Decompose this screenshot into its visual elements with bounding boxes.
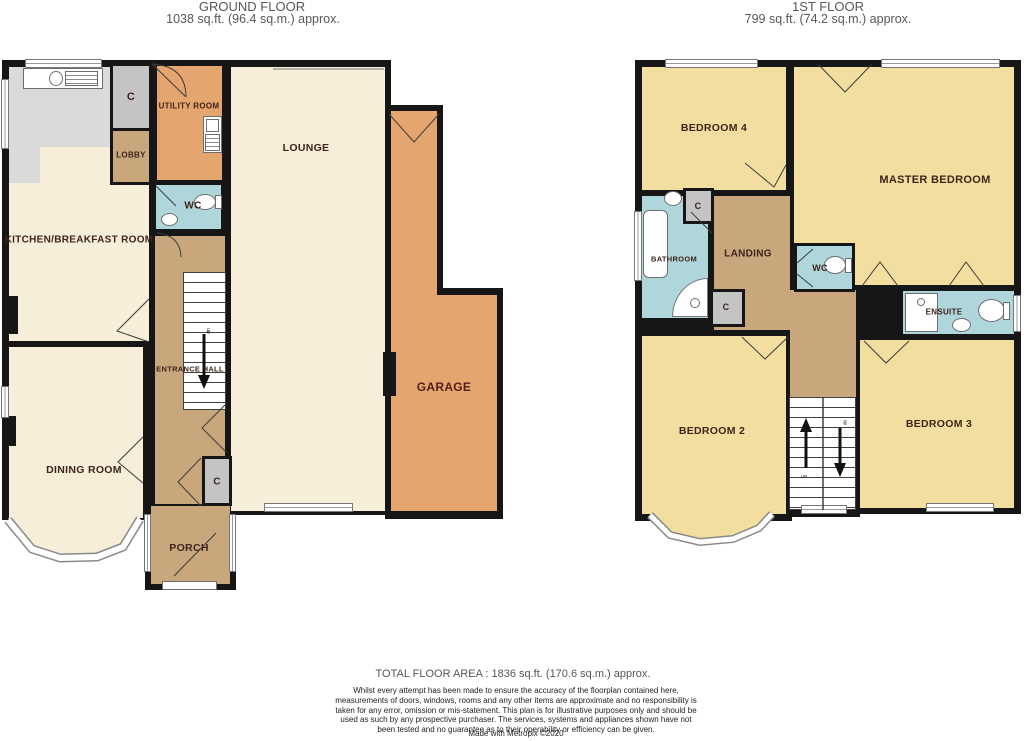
- bathroom-shower-head: [690, 298, 700, 308]
- window-ensuite-right: [1013, 295, 1021, 332]
- wc-ground-cistern: [215, 195, 222, 209]
- label-bathroom: BATHROOM: [651, 255, 697, 264]
- credit-text: Made with Metropix ©2020: [331, 729, 701, 739]
- kitchen-floor-tiles-strip: [9, 147, 40, 183]
- chimney-kitchen: [2, 296, 18, 334]
- ensuite-toilet: [978, 299, 1005, 322]
- window-bedroom4-top: [665, 59, 758, 68]
- ensuite-shower-head: [917, 298, 925, 306]
- label-entrance-hall: ENTRANCE HALL: [156, 365, 224, 374]
- kitchen-drainer: [65, 71, 98, 86]
- stairs-first: [789, 397, 856, 510]
- label-cupboard-hall: C: [213, 477, 221, 488]
- label-dining: DINING ROOM: [46, 464, 122, 476]
- label-ensuite: ENSUITE: [926, 308, 963, 317]
- label-bedroom2: BEDROOM 2: [679, 425, 745, 437]
- label-utility: UTILITY ROOM: [159, 102, 220, 111]
- utility-sink-bowl: [206, 119, 219, 132]
- window-lounge-bottom: [264, 503, 353, 512]
- dining-bay-window: [8, 518, 140, 558]
- window-bedroom3-bottom: [926, 503, 994, 512]
- room-lounge: [231, 67, 385, 511]
- window-kitchen-top: [25, 59, 102, 68]
- room-garage-narrow: [391, 111, 437, 511]
- room-dining: [9, 347, 143, 518]
- label-bedroom3: BEDROOM 3: [906, 418, 972, 430]
- floorplan-canvas: GROUND FLOOR 1038 sq.ft. (96.4 sq.m.) ap…: [0, 0, 1024, 741]
- utility-drainer: [205, 134, 220, 151]
- window-bathroom-left: [634, 211, 642, 281]
- window-porch-left: [144, 514, 151, 572]
- ensuite-cistern: [1003, 302, 1010, 320]
- label-garage: GARAGE: [417, 380, 471, 394]
- window-master-top: [881, 59, 1000, 68]
- label-wc-ground: WC: [184, 201, 201, 212]
- label-cupboard-first-top: C: [695, 201, 702, 211]
- disclaimer-text: Whilst every attempt has been made to en…: [331, 686, 701, 735]
- ensuite-basin: [952, 318, 971, 332]
- window-kitchen-left: [1, 79, 9, 149]
- label-lounge: LOUNGE: [283, 142, 330, 154]
- label-cupboard-ground: C: [127, 91, 135, 103]
- bathroom-basin: [664, 191, 682, 206]
- label-bedroom4: BEDROOM 4: [681, 122, 747, 134]
- chimney-dining: [2, 416, 16, 446]
- window-stairs-bottom: [801, 505, 847, 514]
- window-porch-right: [229, 514, 236, 572]
- kitchen-sink: [49, 71, 63, 86]
- label-lobby: LOBBY: [116, 151, 146, 160]
- first-floor-area: 799 sq.ft. (74.2 sq.m.) approx.: [745, 13, 912, 26]
- label-cupboard-first-mid: C: [723, 302, 730, 312]
- stairs-ground: [183, 272, 226, 410]
- total-floor-area: TOTAL FLOOR AREA : 1836 sq.ft. (170.6 sq…: [376, 668, 651, 680]
- label-wc-first: WC: [812, 263, 828, 273]
- ground-floor-area: 1038 sq.ft. (96.4 sq.m.) approx.: [166, 13, 340, 26]
- window-dining-left: [1, 386, 9, 418]
- label-kitchen: KITCHEN/BREAKFAST ROOM: [5, 235, 154, 246]
- label-master-bedroom: MASTER BEDROOM: [879, 174, 990, 186]
- room-garage-wide: [437, 295, 497, 511]
- wc-first-cistern: [845, 258, 852, 273]
- wc-ground-basin: [161, 213, 178, 226]
- room-landing-column: [790, 290, 856, 397]
- porch-front-door-opening: [162, 581, 217, 590]
- label-landing: LANDING: [724, 249, 772, 260]
- chimney-garage: [383, 352, 396, 396]
- bathroom-bath: [643, 210, 668, 278]
- label-porch: PORCH: [169, 542, 208, 554]
